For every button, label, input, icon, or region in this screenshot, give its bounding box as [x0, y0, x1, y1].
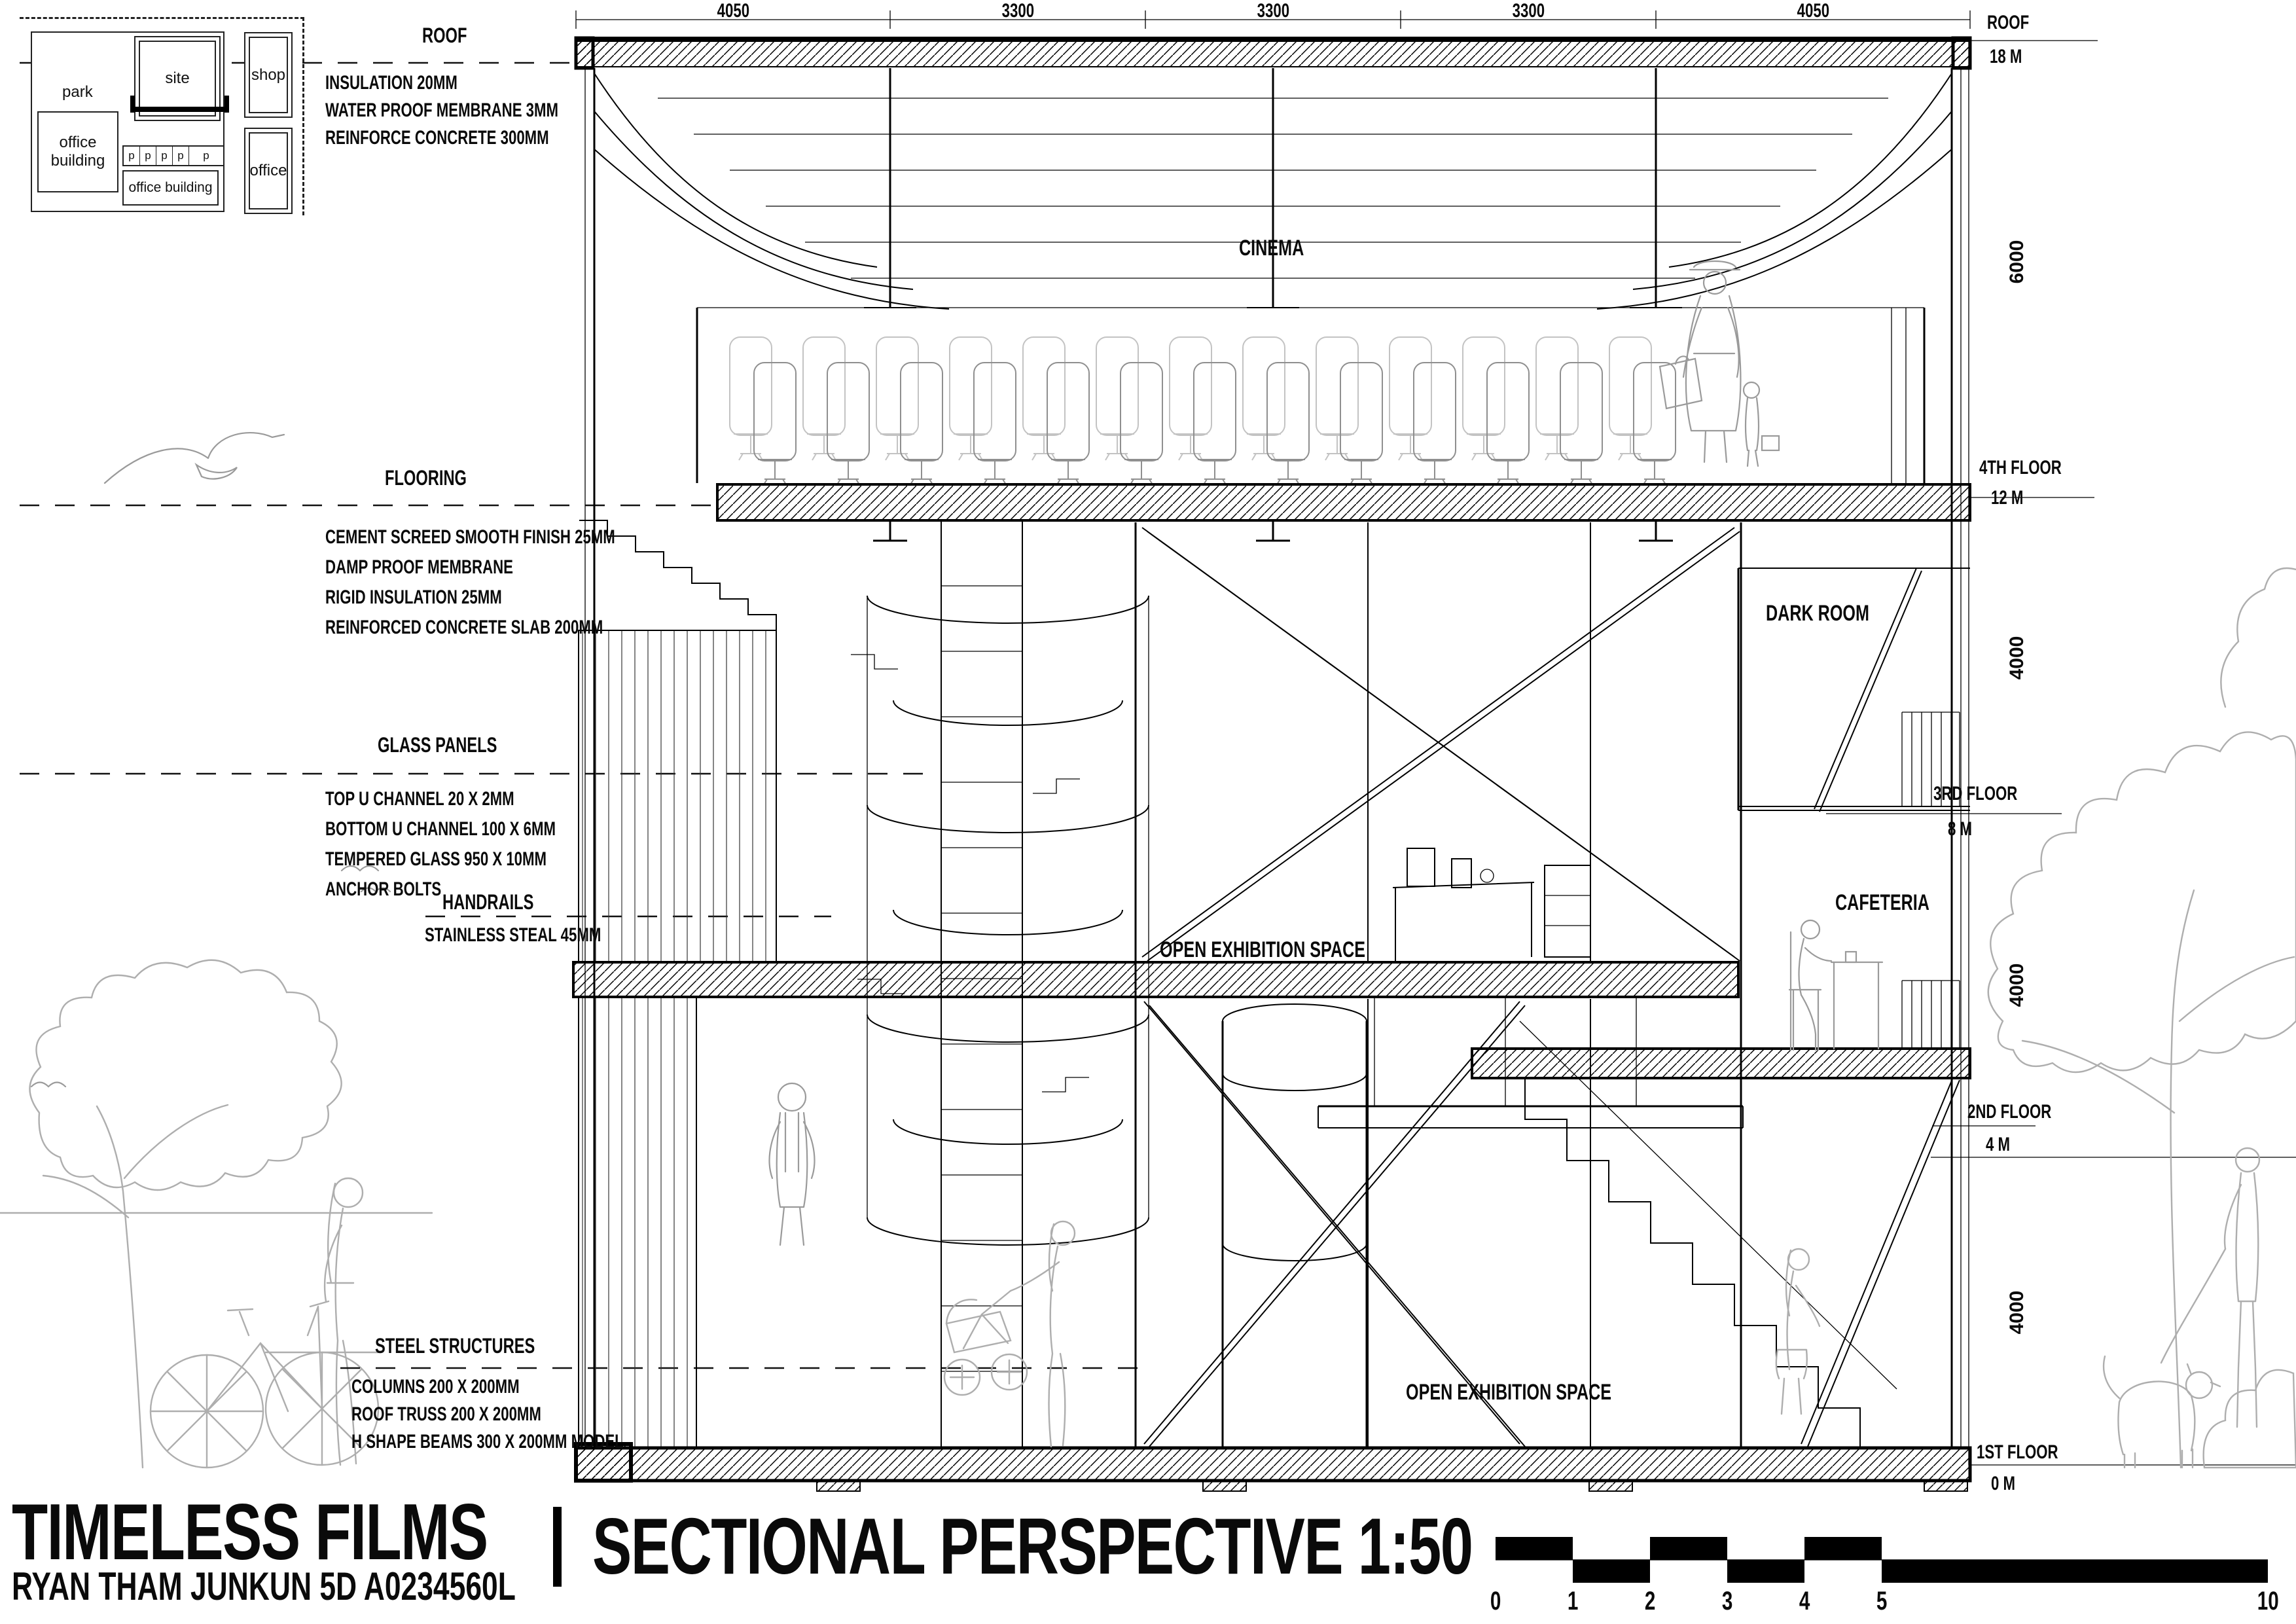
scale-number: 3	[1708, 1587, 1747, 1616]
scale-number: 4	[1785, 1587, 1824, 1616]
drawing-sheet: park site office building p p p p p offi…	[0, 0, 2296, 1624]
scale-number: 1	[1553, 1587, 1592, 1616]
scale-number: 10	[2248, 1587, 2287, 1616]
scale-number: 5	[1862, 1587, 1901, 1616]
scale-number: 2	[1630, 1587, 1670, 1616]
scale-bar	[0, 0, 2296, 1624]
scale-number: 0	[1476, 1587, 1515, 1616]
